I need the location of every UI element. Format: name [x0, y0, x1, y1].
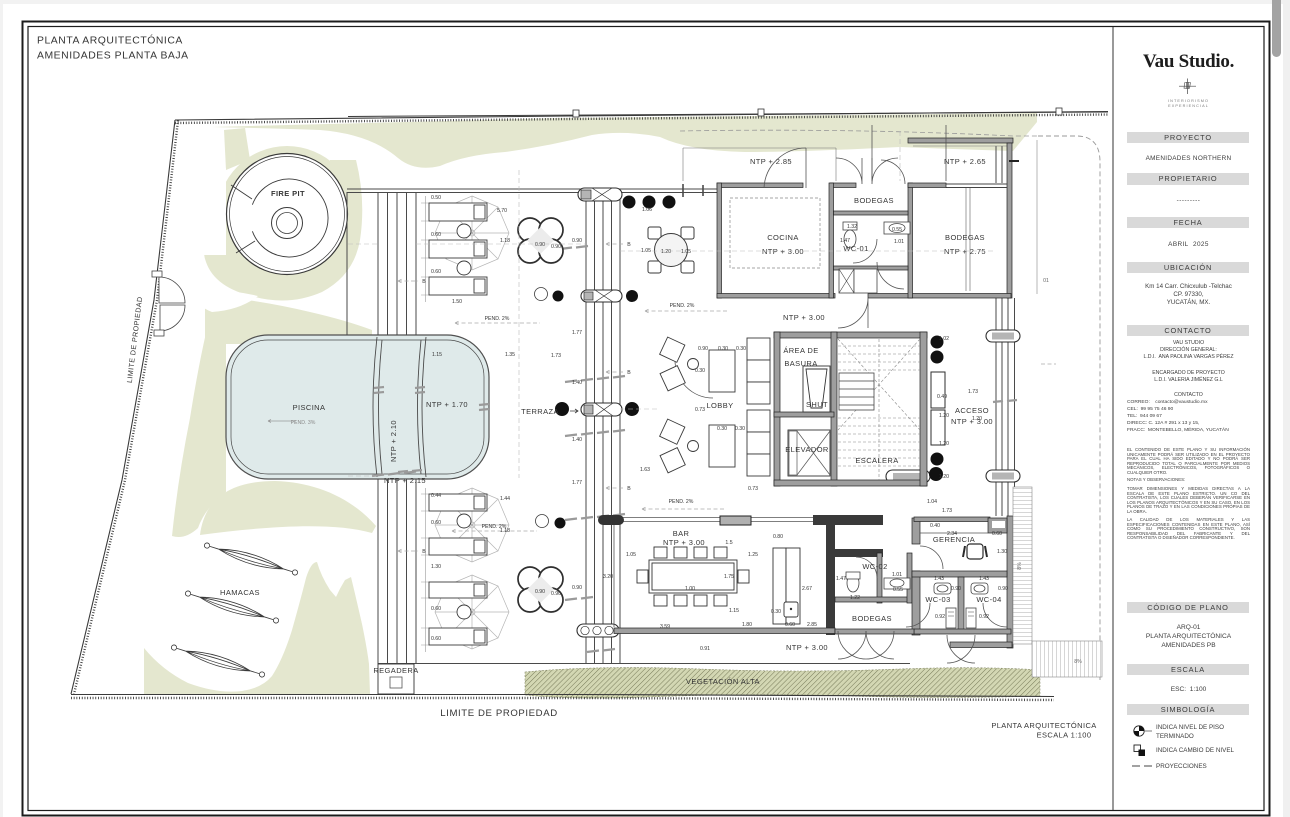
svg-text:PLANTA ARQUITECTÓNICA: PLANTA ARQUITECTÓNICA	[37, 34, 183, 47]
svg-text:1.18: 1.18	[500, 238, 510, 244]
svg-text:1.20: 1.20	[661, 249, 671, 255]
svg-text:0.90: 0.90	[551, 591, 561, 597]
svg-text:1.01: 1.01	[892, 572, 902, 578]
svg-text:VEGETACIÓN ALTA: VEGETACIÓN ALTA	[686, 677, 760, 686]
svg-text:NTP + 2.65: NTP + 2.65	[944, 157, 986, 166]
svg-text:1.15: 1.15	[729, 608, 739, 614]
svg-text:8%: 8%	[1074, 659, 1082, 665]
svg-text:0.60: 0.60	[431, 636, 441, 642]
svg-text:LIMITE DE PROPIEDAD: LIMITE DE PROPIEDAD	[440, 708, 557, 719]
svg-text:NTP + 2.85: NTP + 2.85	[750, 157, 792, 166]
svg-text:0.60: 0.60	[431, 520, 441, 526]
svg-text:NTP + 3.00: NTP + 3.00	[663, 538, 705, 547]
svg-text:1.20: 1.20	[939, 413, 949, 419]
svg-text:PEND. 2%: PEND. 2%	[669, 499, 694, 505]
svg-text:0.60: 0.60	[431, 606, 441, 612]
svg-text:0.44: 0.44	[431, 493, 441, 499]
svg-text:1.06: 1.06	[642, 207, 652, 213]
svg-text:REGADERA: REGADERA	[373, 666, 418, 675]
svg-text:0.90: 0.90	[535, 589, 545, 595]
svg-text:PEND. 2%: PEND. 2%	[485, 316, 510, 322]
svg-text:0.91: 0.91	[700, 646, 710, 652]
svg-text:0.60: 0.60	[431, 269, 441, 275]
svg-text:1.02: 1.02	[939, 336, 949, 342]
svg-text:1.75: 1.75	[724, 574, 734, 580]
svg-text:1.32: 1.32	[847, 224, 857, 230]
svg-text:SHUT: SHUT	[806, 400, 828, 409]
svg-text:0.90: 0.90	[951, 586, 961, 592]
svg-text:BODEGAS: BODEGAS	[945, 233, 985, 242]
svg-text:NTP + 3.00: NTP + 3.00	[786, 643, 828, 652]
svg-text:0.30: 0.30	[717, 426, 727, 432]
svg-text:BASURA: BASURA	[784, 359, 817, 368]
svg-text:0.49: 0.49	[937, 394, 947, 400]
svg-text:B: B	[627, 370, 631, 376]
svg-text:0.40: 0.40	[930, 523, 940, 529]
svg-text:1.20: 1.20	[939, 474, 949, 480]
svg-text:2.34: 2.34	[947, 531, 957, 537]
svg-text:PLANTA ARQUITECTÓNICA: PLANTA ARQUITECTÓNICA	[991, 721, 1096, 730]
svg-text:1.30: 1.30	[431, 564, 441, 570]
svg-text:1.18: 1.18	[500, 528, 510, 534]
svg-text:1.43: 1.43	[934, 576, 944, 582]
svg-text:1.00: 1.00	[685, 586, 695, 592]
svg-text:ACCESO: ACCESO	[955, 406, 989, 415]
svg-text:0.30: 0.30	[735, 426, 745, 432]
svg-text:LOBBY: LOBBY	[706, 401, 733, 410]
svg-text:ÁREA DE: ÁREA DE	[783, 346, 818, 355]
svg-text:1.73: 1.73	[968, 389, 978, 395]
svg-text:3.59: 3.59	[660, 624, 670, 630]
svg-text:1.43: 1.43	[979, 576, 989, 582]
svg-text:ESCALA 1:100: ESCALA 1:100	[1037, 731, 1092, 740]
svg-text:0.55: 0.55	[893, 587, 903, 593]
svg-text:1.40: 1.40	[572, 380, 582, 386]
svg-text:1.77: 1.77	[572, 330, 582, 336]
svg-text:1.77: 1.77	[572, 480, 582, 486]
svg-text:0.80: 0.80	[773, 534, 783, 540]
svg-text:0.73: 0.73	[695, 407, 705, 413]
svg-text:NTP + 3.00: NTP + 3.00	[783, 313, 825, 322]
svg-text:NTP + 2.10: NTP + 2.10	[389, 420, 398, 462]
svg-text:0.92: 0.92	[935, 614, 945, 620]
svg-text:B: B	[422, 549, 426, 555]
svg-text:0.30: 0.30	[718, 346, 728, 352]
svg-text:1.44: 1.44	[500, 496, 510, 502]
svg-text:1.73: 1.73	[551, 353, 561, 359]
svg-text:B: B	[422, 279, 426, 285]
svg-text:PISCINA: PISCINA	[293, 403, 326, 412]
svg-text:0.90: 0.90	[698, 346, 708, 352]
svg-text:0.92: 0.92	[979, 614, 989, 620]
svg-text:1.30: 1.30	[997, 549, 1007, 555]
svg-text:0.90: 0.90	[998, 586, 1008, 592]
svg-text:1.5: 1.5	[725, 540, 732, 546]
svg-text:1.15: 1.15	[432, 352, 442, 358]
svg-text:1.80: 1.80	[742, 622, 752, 628]
svg-text:0.60: 0.60	[992, 531, 1002, 537]
svg-text:AMENIDADES PLANTA BAJA: AMENIDADES PLANTA BAJA	[37, 51, 189, 62]
svg-text:WC-01: WC-01	[843, 244, 868, 253]
svg-text:B: B	[627, 486, 631, 492]
svg-text:2.67: 2.67	[802, 586, 812, 592]
svg-text:TERRAZA: TERRAZA	[521, 407, 559, 416]
svg-text:5.70: 5.70	[497, 208, 507, 214]
svg-text:0.30: 0.30	[695, 368, 705, 374]
svg-text:1.40: 1.40	[572, 437, 582, 443]
svg-text:NTP + 2.75: NTP + 2.75	[944, 247, 986, 256]
svg-text:1.20: 1.20	[939, 441, 949, 447]
svg-text:1.50: 1.50	[452, 299, 462, 305]
svg-text:1.20: 1.20	[972, 416, 982, 422]
svg-text:0.90: 0.90	[535, 242, 545, 248]
svg-text:BODEGAS: BODEGAS	[854, 196, 894, 205]
svg-text:1.35: 1.35	[505, 352, 515, 358]
svg-text:3.20: 3.20	[603, 574, 613, 580]
svg-text:0.30: 0.30	[771, 609, 781, 615]
svg-text:0.50: 0.50	[431, 195, 441, 201]
svg-text:0.55: 0.55	[892, 227, 902, 233]
svg-text:1.04: 1.04	[927, 499, 937, 505]
svg-text:1.05: 1.05	[626, 552, 636, 558]
svg-text:1.25: 1.25	[748, 552, 758, 558]
svg-text:1.05: 1.05	[681, 249, 691, 255]
svg-text:1.22: 1.22	[850, 595, 860, 601]
svg-text:PEND. 2%: PEND. 2%	[670, 303, 695, 309]
svg-text:8%: 8%	[1017, 562, 1023, 570]
svg-text:0.73: 0.73	[748, 486, 758, 492]
svg-text:BODEGAS: BODEGAS	[852, 614, 892, 623]
svg-text:HAMACAS: HAMACAS	[220, 588, 260, 597]
svg-text:1.73: 1.73	[942, 508, 952, 514]
svg-text:0.90: 0.90	[572, 238, 582, 244]
svg-text:1.63: 1.63	[640, 467, 650, 473]
svg-text:B: B	[627, 242, 631, 248]
svg-text:BAR: BAR	[673, 529, 690, 538]
svg-text:0.90: 0.90	[572, 585, 582, 591]
svg-text:ESCALERA: ESCALERA	[855, 456, 898, 465]
svg-text:0.90: 0.90	[551, 244, 561, 250]
svg-text:WC-04: WC-04	[976, 595, 1001, 604]
svg-text:2.85: 2.85	[807, 622, 817, 628]
svg-text:1.47: 1.47	[836, 576, 846, 582]
svg-text:0.30: 0.30	[736, 346, 746, 352]
svg-text:COCINA: COCINA	[767, 233, 799, 242]
svg-text:ELEVADOR: ELEVADOR	[785, 445, 829, 454]
svg-text:NTP + 1.70: NTP + 1.70	[426, 400, 468, 409]
svg-text:FIRE PIT: FIRE PIT	[271, 189, 305, 198]
svg-text:0.60: 0.60	[785, 622, 795, 628]
svg-text:1.01: 1.01	[894, 239, 904, 245]
svg-text:0.60: 0.60	[431, 232, 441, 238]
svg-text:WC-03: WC-03	[925, 595, 950, 604]
svg-text:01: 01	[1043, 278, 1049, 284]
svg-text:WC-02: WC-02	[862, 562, 887, 571]
svg-text:NTP + 3.00: NTP + 3.00	[762, 247, 804, 256]
svg-text:1.47: 1.47	[840, 238, 850, 244]
svg-text:NTP + 2.15: NTP + 2.15	[384, 476, 426, 485]
